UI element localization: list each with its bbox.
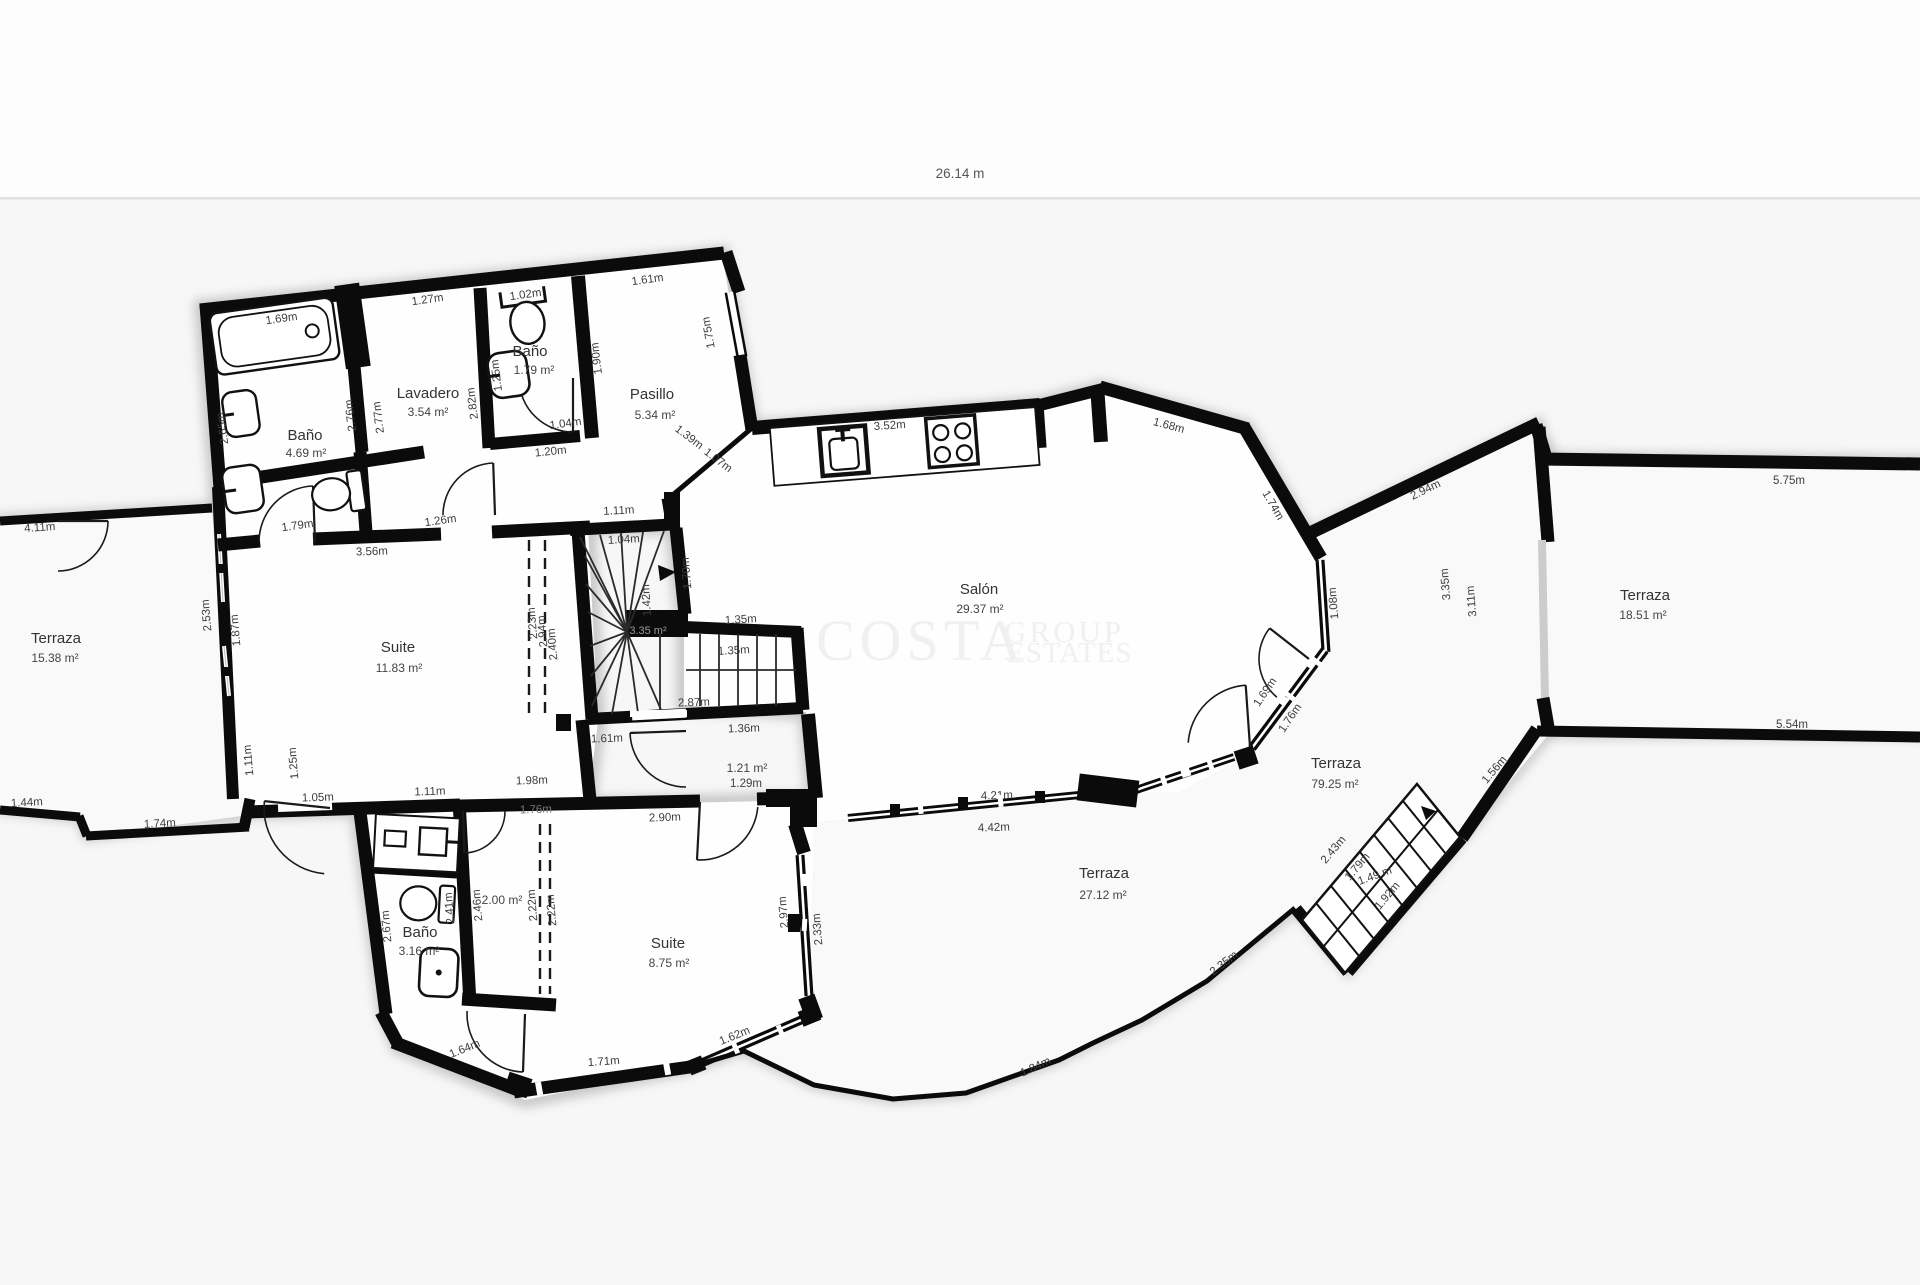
svg-text:3.54 m²: 3.54 m² [408, 405, 449, 419]
svg-text:3.16 m²: 3.16 m² [399, 944, 440, 958]
svg-text:Terraza: Terraza [1620, 587, 1671, 604]
svg-text:2.87m: 2.87m [678, 696, 710, 709]
svg-text:1.71m: 1.71m [587, 1055, 620, 1069]
svg-text:1.76m: 1.76m [520, 803, 552, 816]
svg-text:5.54m: 5.54m [1776, 719, 1808, 731]
svg-text:2.00 m²: 2.00 m² [482, 893, 523, 907]
svg-text:1.44m: 1.44m [11, 796, 44, 810]
svg-text:Suite: Suite [381, 639, 415, 656]
svg-text:1.35m: 1.35m [725, 613, 758, 627]
svg-text:1.11m: 1.11m [414, 785, 446, 798]
svg-text:1.98m: 1.98m [516, 774, 548, 787]
svg-text:COSTA: COSTA [816, 608, 1027, 673]
svg-text:Baño: Baño [402, 924, 437, 941]
svg-text:18.51 m²: 18.51 m² [1619, 608, 1666, 622]
svg-text:ESTATES: ESTATES [1007, 637, 1133, 669]
svg-text:27.12 m²: 27.12 m² [1079, 888, 1126, 902]
svg-text:5.75m: 5.75m [1773, 475, 1805, 487]
svg-text:1.36m: 1.36m [728, 722, 760, 735]
svg-text:8.75 m²: 8.75 m² [649, 956, 690, 970]
svg-text:Baño: Baño [512, 343, 547, 360]
svg-text:26.14 m: 26.14 m [936, 166, 985, 181]
svg-text:1.04m: 1.04m [608, 533, 641, 547]
svg-text:15.38 m²: 15.38 m² [31, 651, 78, 665]
svg-text:1.11m: 1.11m [603, 504, 635, 518]
svg-text:4.69 m²: 4.69 m² [286, 446, 327, 460]
svg-text:1.35m: 1.35m [718, 644, 751, 658]
svg-text:1.29m: 1.29m [730, 778, 762, 790]
svg-text:5.34 m²: 5.34 m² [635, 408, 676, 422]
svg-text:Terraza: Terraza [1079, 865, 1130, 882]
svg-text:Salón: Salón [960, 581, 998, 598]
svg-text:1.42m: 1.42m [640, 584, 654, 617]
svg-text:Suite: Suite [651, 935, 685, 952]
svg-text:Lavadero: Lavadero [397, 385, 460, 402]
svg-text:1.05m: 1.05m [302, 791, 334, 804]
svg-text:1.21 m²: 1.21 m² [727, 761, 768, 775]
svg-text:1.74m: 1.74m [144, 817, 177, 831]
svg-text:1.79 m²: 1.79 m² [514, 363, 555, 377]
svg-text:79.25 m²: 79.25 m² [1311, 777, 1358, 791]
svg-text:4.11m: 4.11m [24, 521, 56, 535]
svg-text:3.56m: 3.56m [356, 545, 388, 558]
svg-text:Pasillo: Pasillo [630, 386, 674, 403]
svg-text:1.61m: 1.61m [591, 732, 623, 745]
svg-text:2.90m: 2.90m [649, 811, 681, 824]
svg-text:4.42m: 4.42m [978, 821, 1010, 834]
svg-text:4.21m: 4.21m [981, 789, 1013, 802]
svg-text:3.52m: 3.52m [873, 419, 906, 433]
svg-text:Terraza: Terraza [31, 630, 82, 647]
svg-text:Baño: Baño [287, 427, 322, 444]
svg-text:11.83 m²: 11.83 m² [376, 661, 422, 675]
svg-text:Terraza: Terraza [1311, 755, 1362, 772]
svg-text:3.35 m²: 3.35 m² [629, 625, 667, 637]
